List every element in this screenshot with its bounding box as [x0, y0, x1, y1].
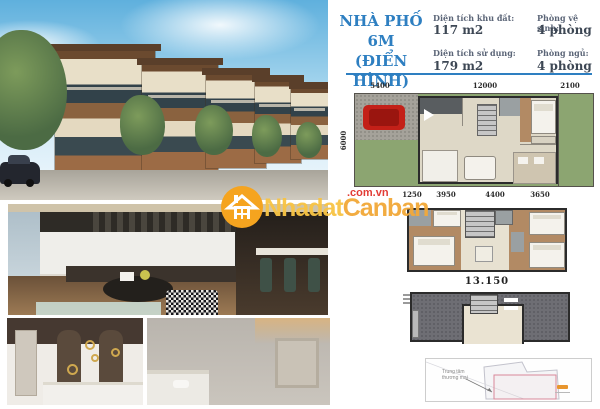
spec-value-floor-area: 179 m2	[433, 59, 483, 73]
gold-decor	[85, 340, 95, 350]
vanity-room-photo	[7, 318, 143, 405]
tree	[195, 105, 233, 155]
dim-bottom-2: 3950	[436, 190, 455, 199]
driveway	[355, 94, 418, 140]
dim-bottom-3: 4400	[485, 190, 504, 199]
map-annotation-line2: thương mại	[442, 375, 468, 381]
tree	[252, 115, 282, 157]
bar-counter	[256, 248, 328, 255]
site-location-map: Trung tâm thương mại	[425, 358, 592, 402]
bed	[529, 242, 565, 268]
houndstooth-pouf	[166, 290, 218, 315]
bedroom-floor-strip	[520, 98, 531, 142]
marble-column	[209, 318, 259, 405]
spec-value-bathrooms: 4 phòng	[537, 23, 592, 37]
mirror	[99, 330, 123, 382]
dim-bottom-4: 3650	[530, 190, 549, 199]
table-decor	[120, 272, 134, 281]
vanity-counter	[43, 382, 143, 405]
car-roof	[369, 109, 399, 126]
spec-label-land-area: Diện tích khu đất:	[433, 13, 514, 23]
kitchen-counter	[513, 152, 556, 184]
sink	[518, 157, 528, 164]
skylight	[504, 298, 518, 302]
exterior-townhouse-photo	[0, 0, 328, 200]
parked-car	[363, 105, 405, 130]
spec-label-floor-area: Diện tích sử dụng:	[433, 48, 516, 58]
dim-top-2: 12000	[473, 81, 497, 90]
gold-decor	[67, 364, 78, 375]
bar-stool	[260, 258, 272, 292]
floor-plan-upper	[407, 208, 567, 272]
stairs	[477, 104, 497, 136]
spec-value-bedrooms: 4 phòng	[537, 59, 592, 73]
dim-left: 6000	[339, 131, 348, 150]
dining-table	[464, 156, 496, 180]
brand-part1: Nhadat	[264, 194, 343, 222]
door	[15, 330, 37, 396]
dim-top-1: 5400	[370, 81, 389, 90]
bathroom	[511, 232, 524, 252]
stairs	[470, 294, 498, 314]
bathroom	[499, 98, 521, 116]
spec-label-bedrooms: Phòng ngủ:	[537, 48, 589, 58]
house-interior	[418, 96, 558, 184]
bed	[433, 210, 461, 227]
tree	[120, 95, 165, 155]
wc	[495, 210, 513, 225]
glass-table	[36, 302, 161, 315]
page-title: NHÀ PHỐ 6M (ĐIỂN HÌNH)	[328, 11, 434, 91]
listing-image: NhadatCanban .com.vn NHÀ PHỐ 6M (ĐIỂN HÌ…	[0, 0, 600, 409]
bar-stool	[308, 258, 320, 292]
bar-stool	[284, 258, 296, 292]
bed	[413, 236, 455, 266]
site-map-drawing	[426, 359, 593, 403]
desk	[475, 246, 493, 262]
dim-top-3: 2100	[560, 81, 579, 90]
floor-plan-ground	[355, 94, 593, 186]
wall-line	[462, 98, 463, 126]
floor-plan-roof	[410, 292, 570, 342]
brand-wordmark: NhadatCanban	[264, 196, 428, 221]
sink	[173, 380, 189, 388]
skylight	[504, 306, 518, 310]
mirror-panel	[275, 338, 319, 388]
map-marker-caption	[555, 392, 570, 393]
flowers	[140, 270, 150, 280]
spec-value-land-area: 117 m2	[433, 23, 483, 37]
stairs	[465, 210, 495, 238]
street-car	[0, 162, 40, 184]
entry-arrow-icon	[424, 109, 434, 121]
brand-suffix: .com.vn	[347, 187, 389, 199]
total-width-label: 13.150	[465, 276, 509, 287]
header-divider	[346, 73, 592, 75]
brand-house-icon	[221, 186, 263, 228]
map-marker-icon	[557, 385, 568, 389]
stove	[534, 157, 544, 164]
gold-decor	[111, 348, 120, 357]
gold-decor	[91, 354, 99, 362]
wardrobe	[531, 136, 556, 144]
house-icon	[221, 186, 263, 228]
lawn-border	[558, 94, 559, 186]
title-line1: NHÀ PHỐ 6M	[328, 11, 434, 51]
bathroom-photo	[147, 318, 330, 405]
bed	[529, 212, 565, 235]
coffee-table	[103, 276, 173, 302]
bed	[531, 100, 556, 134]
sofa	[422, 150, 458, 182]
wall-line	[520, 144, 556, 145]
tree	[296, 122, 322, 158]
side-ledge	[412, 310, 419, 338]
